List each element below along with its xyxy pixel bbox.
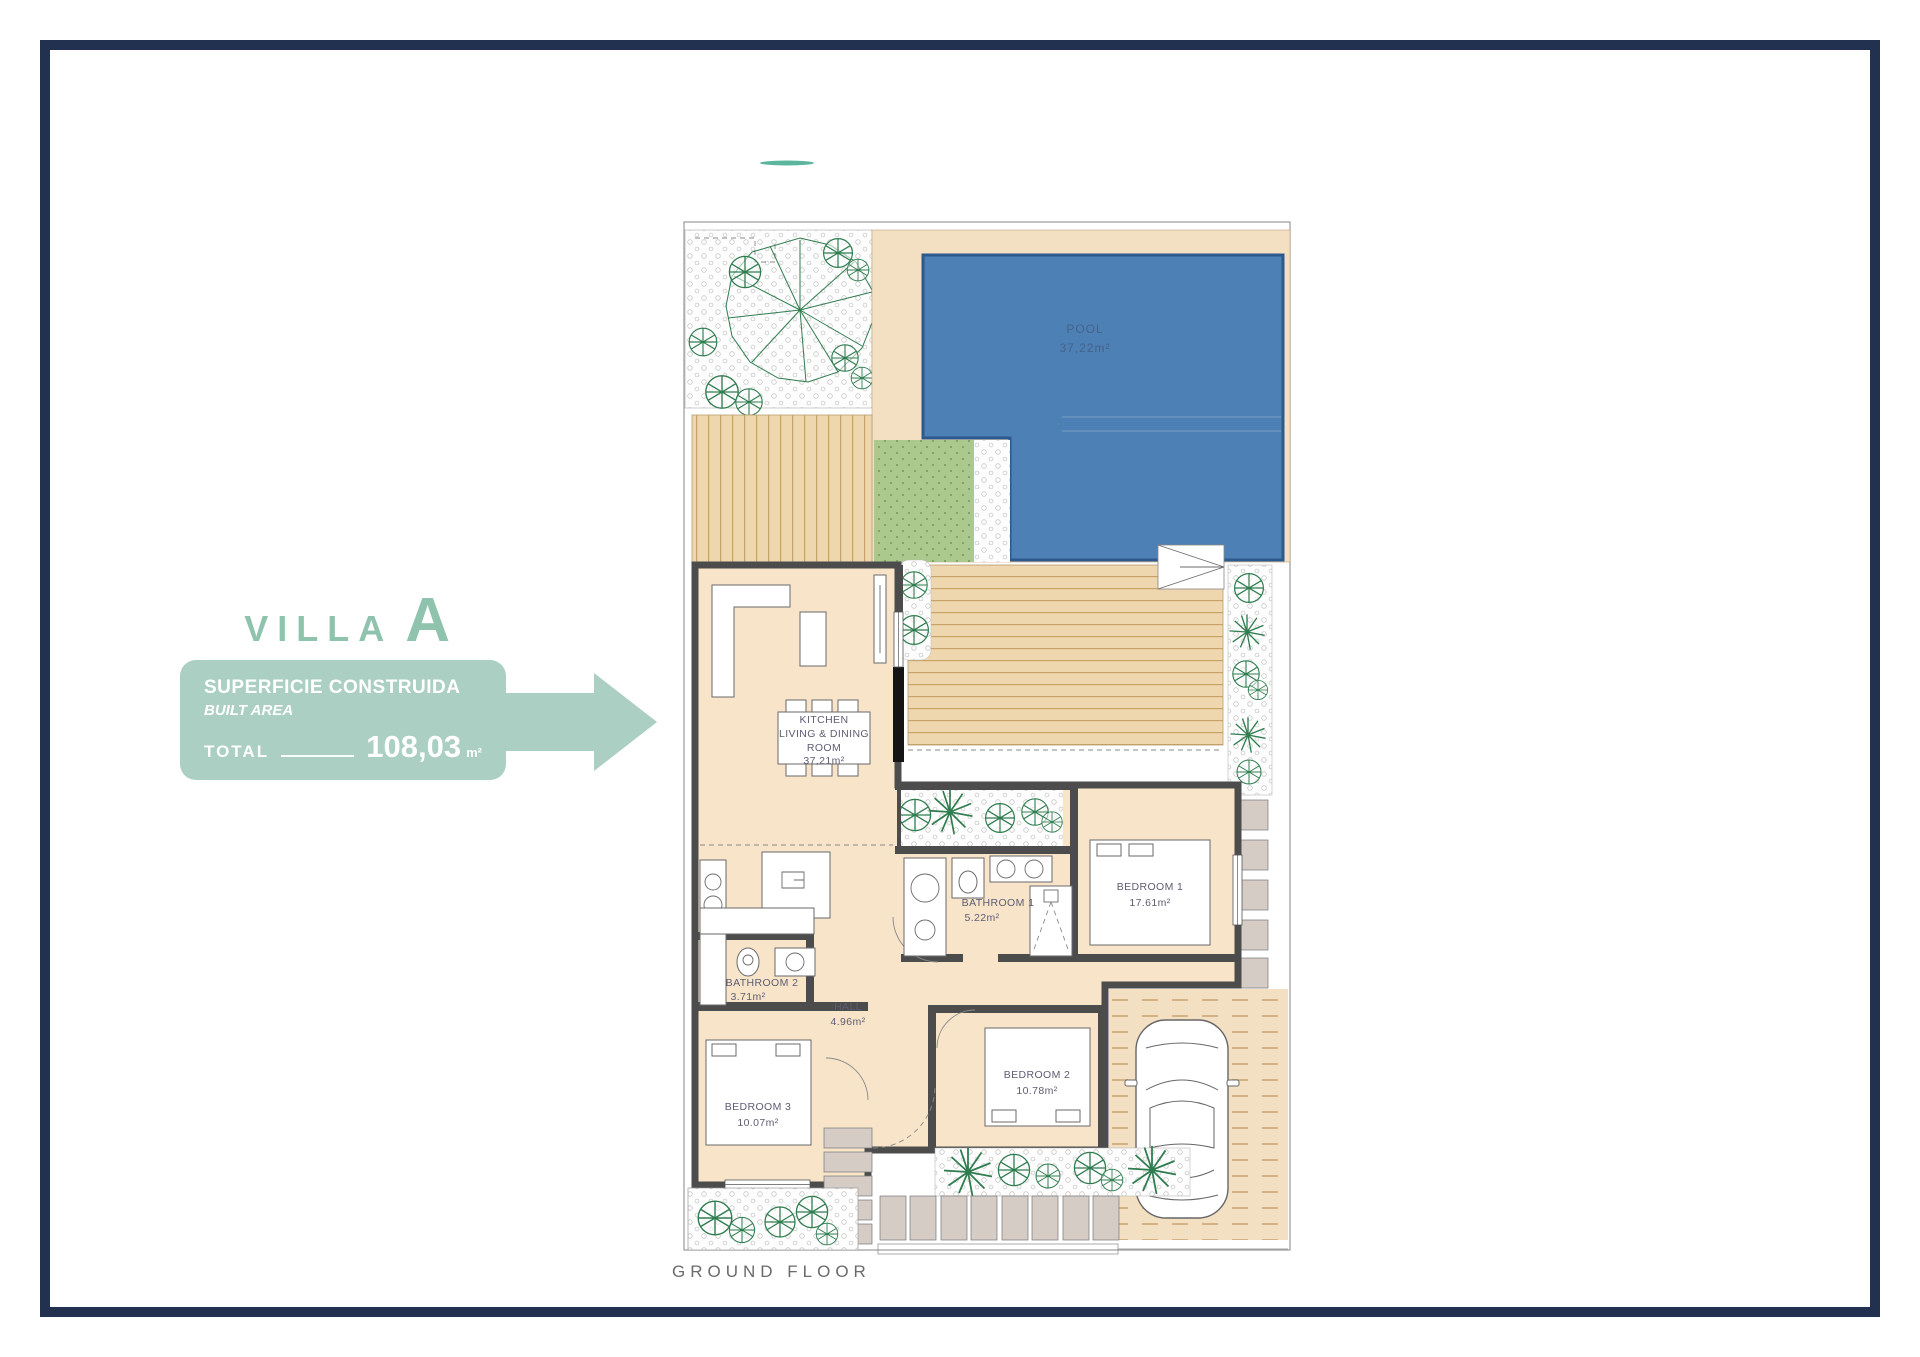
kld-area-label: 37,21m² xyxy=(803,755,844,767)
front-garden-left xyxy=(688,1188,858,1250)
total-label: TOTAL xyxy=(204,742,269,762)
bedroom2-label: BEDROOM 2 xyxy=(1004,1069,1071,1081)
logo-mark xyxy=(760,161,814,166)
built-area-total-row: TOTAL 108,03 m² xyxy=(204,729,482,765)
bathroom2-label: BATHROOM 2 xyxy=(726,977,799,989)
villa-title-prefix: VILLA xyxy=(244,608,393,650)
floor-label: GROUND FLOOR xyxy=(672,1262,871,1281)
built-area-title: SUPERFICIE CONSTRUIDA xyxy=(204,677,482,699)
carport xyxy=(1109,989,1288,1240)
villa-title-letter: A xyxy=(405,585,450,656)
gravel-strip-lawn xyxy=(974,440,1010,562)
villa-title: VILLA A xyxy=(190,585,450,656)
kld-label-1: KITCHEN xyxy=(800,714,849,726)
bedroom3-area-label: 10.07m² xyxy=(737,1117,778,1129)
bathroom1-area-label: 5.22m² xyxy=(964,912,999,924)
page: VILLA A SUPERFICIE CONSTRUIDA BUILT AREA… xyxy=(0,0,1920,1357)
bedroom2: BEDROOM 2 10.78m² xyxy=(985,1028,1090,1126)
pool-label: POOL xyxy=(1066,322,1103,336)
hall-label: HALL xyxy=(834,1001,862,1013)
leader-line xyxy=(281,755,354,757)
floor-plan: POOL 37,22m² xyxy=(640,150,1320,1310)
bedroom1-area-label: 17.61m² xyxy=(1129,897,1170,909)
total-value: 108,03 xyxy=(366,729,461,765)
bathroom2-area-label: 3.71m² xyxy=(730,991,765,1003)
bedroom3: BEDROOM 3 10.07m² xyxy=(706,1040,811,1145)
pool-area-label: 37,22m² xyxy=(1059,341,1110,355)
interior-patio xyxy=(899,790,1063,848)
kld-label-3: ROOM xyxy=(807,742,841,754)
deck-drain-marker xyxy=(1158,545,1224,589)
kld-label-2: LIVING & DINING xyxy=(779,728,869,740)
lawn xyxy=(874,440,974,562)
built-area-info-box: SUPERFICIE CONSTRUIDA BUILT AREA TOTAL 1… xyxy=(180,660,506,780)
total-unit: m² xyxy=(466,745,482,760)
arrow-right-icon xyxy=(497,665,662,780)
built-area-subtitle: BUILT AREA xyxy=(204,702,482,719)
bedroom1: BEDROOM 1 17.61m² xyxy=(1090,840,1210,945)
terrace-corner-planter xyxy=(899,560,931,660)
bathroom1-label: BATHROOM 1 xyxy=(962,897,1035,909)
bedroom1-label: BEDROOM 1 xyxy=(1117,881,1184,893)
bedroom2-area-label: 10.78m² xyxy=(1016,1085,1057,1097)
bedroom3-label: BEDROOM 3 xyxy=(725,1101,792,1113)
hall-area-label: 4.96m² xyxy=(830,1016,865,1028)
dining-table: KITCHEN LIVING & DINING ROOM 37,21m² xyxy=(778,700,870,776)
terrace-deck xyxy=(908,565,1223,745)
wood-deck xyxy=(692,415,872,562)
